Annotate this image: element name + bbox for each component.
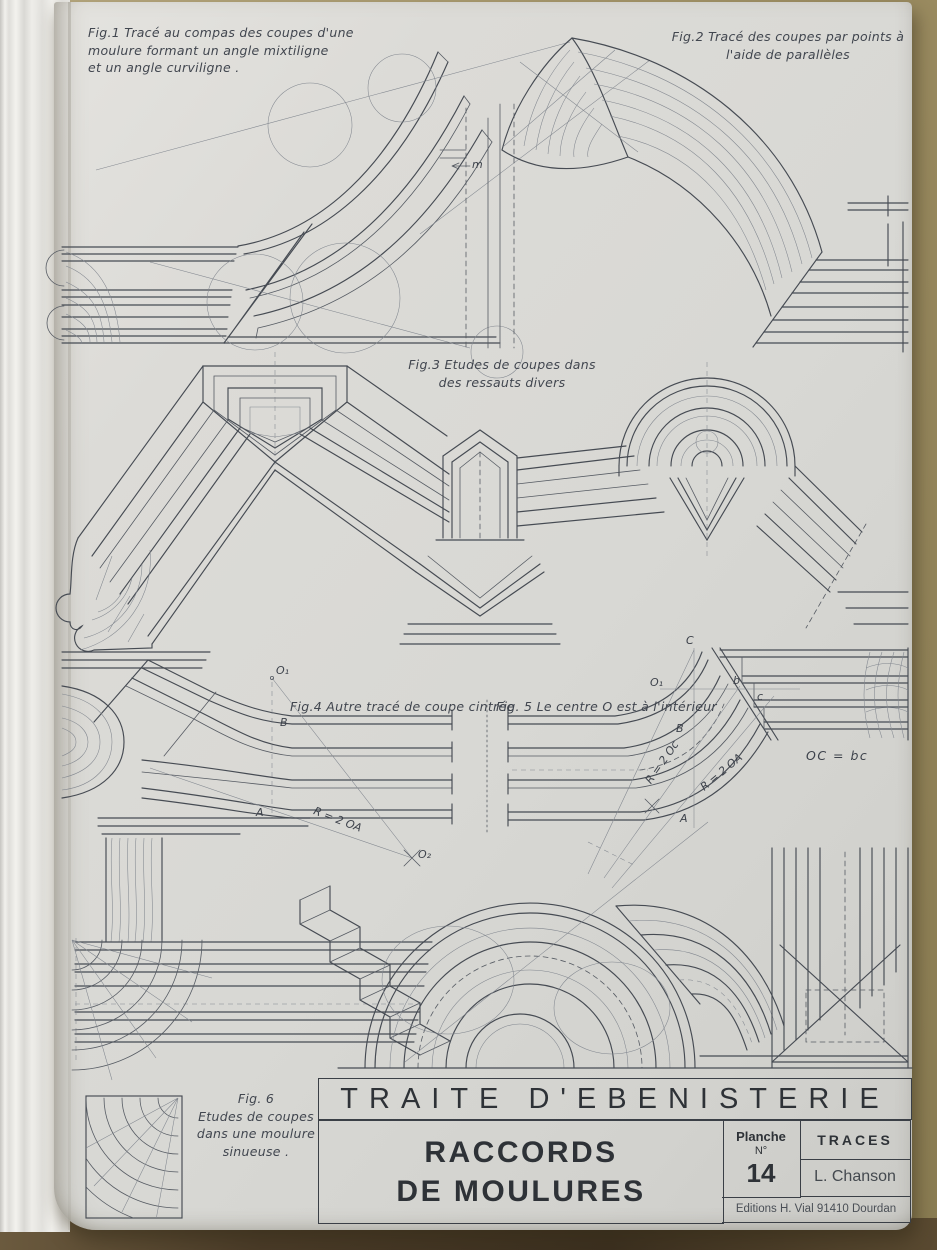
section-cell: TRACES	[800, 1120, 911, 1160]
plate-title: RACCORDS DE MOULURES	[318, 1120, 724, 1224]
fig5-caption: Fig. 5 Le centre O est à l'intérieur	[496, 698, 717, 716]
author-cell: L. Chanson	[800, 1158, 911, 1197]
fig5-equation-label: OC = bc	[806, 748, 868, 763]
series-title: TRAITE D'EBENISTERIE	[318, 1078, 912, 1120]
fig5-b-point-label: b	[733, 674, 740, 687]
plate-title-line2: DE MOULURES	[396, 1172, 645, 1211]
fig4-caption: Fig.4 Autre tracé de coupe cintrée	[290, 698, 514, 716]
plate-title-line1: RACCORDS	[424, 1133, 617, 1172]
plate-number: 14	[747, 1158, 776, 1189]
fig4-o2-label: O₂	[418, 848, 431, 861]
plate-label: Planche	[736, 1129, 786, 1144]
publisher-cell: Editions H. Vial 91410 Dourdan	[722, 1196, 911, 1223]
plate-number-cell: Planche N° 14	[722, 1120, 801, 1198]
fig5-drawing	[508, 648, 908, 888]
fig2-drawing	[502, 38, 908, 352]
m-point-label: m	[472, 158, 483, 171]
fig5-o1-label: O₁	[650, 676, 663, 689]
fig4-drawing	[62, 660, 487, 866]
fig5-c-label: C	[686, 634, 694, 647]
fig2-caption: Fig.2 Tracé des coupes par points à l'ai…	[666, 28, 910, 63]
fig4-b-label: B	[280, 716, 288, 729]
fig1-drawing	[46, 42, 650, 378]
scanned-book-photo: Fig.1 Tracé au compas des coupes d'une m…	[0, 0, 937, 1250]
plate-line-art	[0, 0, 937, 1250]
fig5-a-label: A	[680, 812, 688, 825]
fig5-bcap-label: B	[676, 722, 684, 735]
fig4-a-label: A	[256, 806, 264, 819]
fig4-o1-label: O₁	[276, 664, 289, 677]
title-block: TRAITE D'EBENISTERIE RACCORDS DE MOULURE…	[318, 1078, 912, 1224]
fig3-drawing	[56, 352, 908, 668]
fig1-caption: Fig.1 Tracé au compas des coupes d'une m…	[88, 24, 356, 77]
fig3-caption: Fig.3 Etudes de coupes dans des ressauts…	[382, 356, 622, 391]
fig6-caption: Fig. 6 Etudes de coupes dans une moulure…	[186, 1090, 326, 1160]
fig5-c-point-label: c	[757, 690, 763, 703]
plate-number-sign: N°	[755, 1145, 767, 1157]
